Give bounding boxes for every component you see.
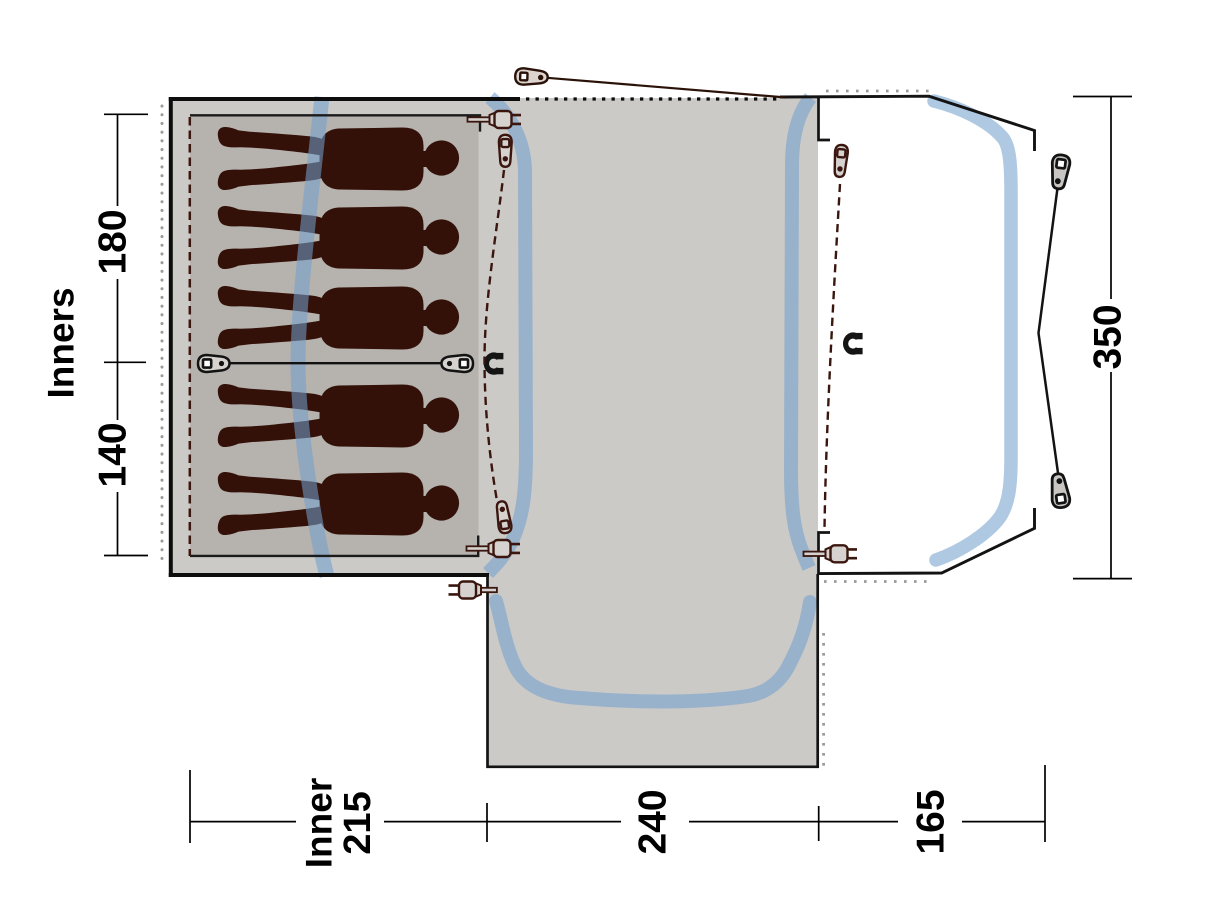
svg-text:350: 350 — [1087, 304, 1130, 369]
svg-text:180: 180 — [92, 209, 135, 274]
svg-text:Inners: Inners — [41, 287, 82, 398]
svg-text:165: 165 — [910, 789, 953, 854]
svg-text:215: 215 — [337, 791, 379, 854]
svg-text:240: 240 — [632, 789, 675, 854]
svg-text:Inner: Inner — [299, 778, 340, 868]
svg-text:140: 140 — [92, 422, 135, 487]
